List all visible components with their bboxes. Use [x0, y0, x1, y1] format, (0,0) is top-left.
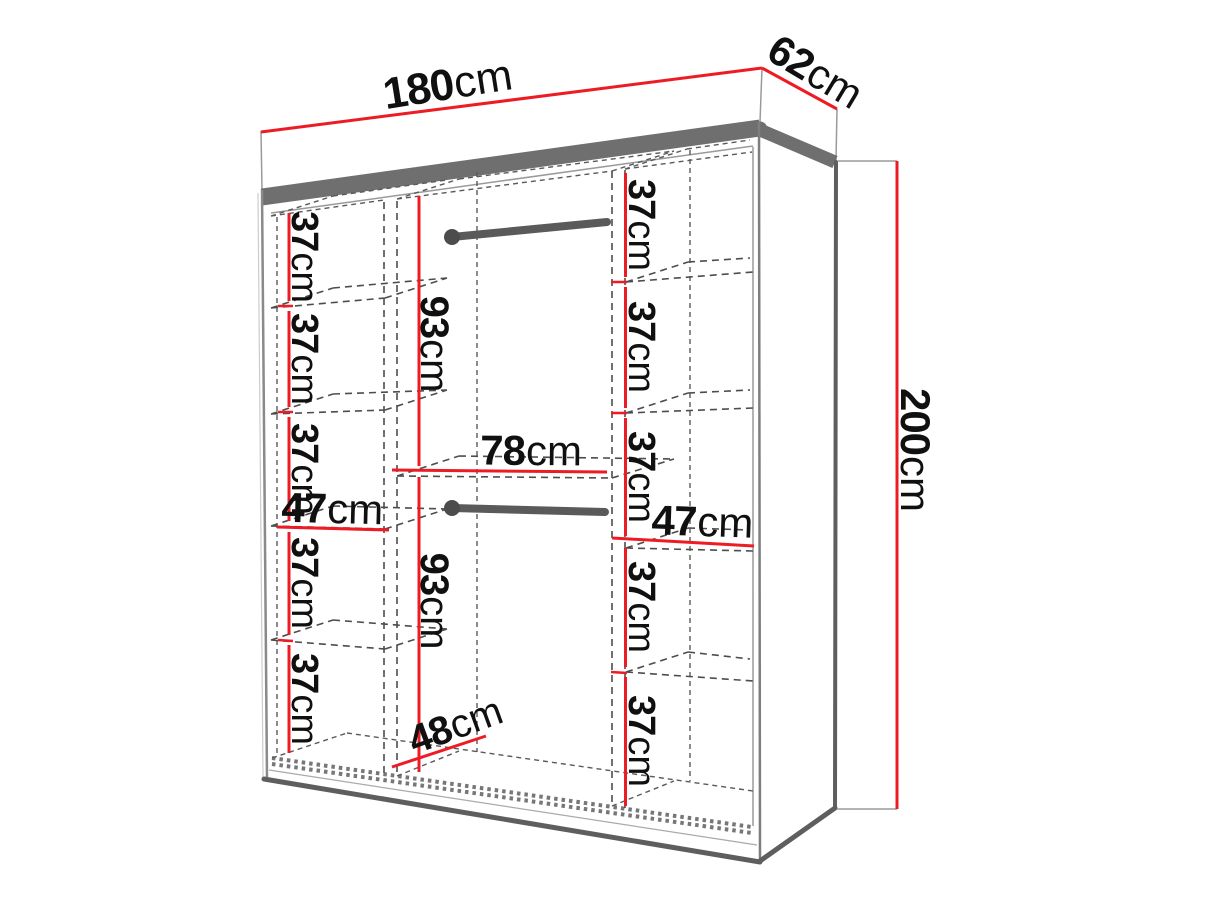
label-middle-width-78: 78cm [480, 427, 582, 475]
partition-left-front [384, 201, 397, 776]
rod-bar [452, 222, 607, 237]
label-left-shelf-4: 37cm [283, 537, 325, 629]
label-right-shelf-1: 37cm [620, 179, 662, 271]
plinth-top-line [269, 770, 757, 845]
label-left-shelf-2: 37cm [283, 313, 325, 405]
side-bottom-edge [760, 808, 835, 861]
hanging-rod-bottom [444, 500, 605, 516]
label-left-shelf-5: 37cm [283, 653, 325, 745]
label-left-width-47: 47cm [281, 484, 384, 534]
label-right-width-47: 47cm [651, 496, 754, 547]
label-right-shelf-5: 37cm [620, 695, 662, 787]
crown-right [760, 130, 835, 162]
dimension-labels: 180cm 62cm 200cm 37cm 37cm 37cm 37cm 37c… [281, 25, 939, 787]
rod-bar [452, 508, 605, 512]
wardrobe-dimension-diagram: 180cm 62cm 200cm 37cm 37cm 37cm 37cm 37c… [0, 0, 1214, 911]
label-right-shelf-4: 37cm [620, 561, 662, 653]
label-right-shelf-2: 37cm [620, 301, 662, 393]
hanging-rod-top [444, 222, 607, 245]
floor-back-edges [272, 733, 753, 806]
right-shelf-2 [626, 390, 753, 413]
right-front-edge [759, 122, 760, 861]
label-hanging-bottom-93: 93cm [412, 553, 456, 650]
rod-end-cap [444, 500, 460, 516]
label-hanging-top-93: 93cm [412, 296, 456, 393]
rod-end-cap [444, 229, 460, 245]
diagram-stage: 180cm 62cm 200cm 37cm 37cm 37cm 37cm 37c… [0, 0, 1214, 911]
interior-dashed-lines [271, 140, 753, 808]
crown-front [262, 128, 760, 197]
label-width-180: 180cm [380, 50, 516, 119]
label-left-shelf-1: 37cm [283, 211, 325, 303]
dim-extension-200 [837, 161, 897, 809]
label-height-200: 200cm [892, 388, 939, 512]
label-depth-62: 62cm [760, 25, 871, 118]
side-back-edge [835, 162, 836, 808]
